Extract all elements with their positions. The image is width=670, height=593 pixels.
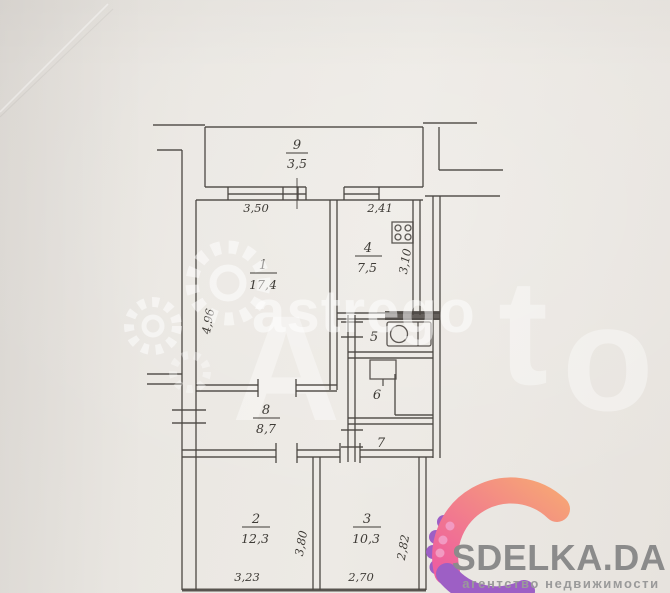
room-area: 10,3 <box>352 531 380 546</box>
watermark-letter-t: t <box>498 248 548 416</box>
room-number: 9 <box>293 138 301 153</box>
room-area: 3,5 <box>287 156 307 171</box>
room-number: 4 <box>363 241 372 256</box>
agency-logo: SDELKA.DA агентство недвижимости <box>426 490 666 593</box>
dim-room2-height: 3,80 <box>292 529 310 557</box>
room-2-label: 2 12,3 <box>241 512 270 546</box>
room-area: 12,3 <box>241 531 269 546</box>
dim-room3-height: 2,82 <box>394 533 412 562</box>
gear-icon <box>173 355 207 389</box>
logo-title: SDELKA.DA <box>452 537 667 578</box>
room-7-label: 7 <box>377 436 386 451</box>
gear-icon <box>129 302 177 350</box>
paper-crease <box>0 4 113 117</box>
dim-room3-width: 2,70 <box>347 570 374 584</box>
watermark-letter-o: o <box>562 274 654 442</box>
dim-kitchen-height: 3,10 <box>396 247 414 275</box>
dim-room2-width: 3,23 <box>234 570 260 584</box>
sink-icon <box>370 360 396 386</box>
floor-plan-photo: A t o <box>0 0 670 593</box>
room-3-label: 3 10,3 <box>352 512 381 546</box>
dim-room1-width: 3,50 <box>243 201 269 215</box>
dim-kitchen-width: 2,41 <box>366 201 393 215</box>
toilet-label: 6 <box>373 388 381 403</box>
floor-plan-drawing: A t o <box>0 0 670 593</box>
logo-tagline: агентство недвижимости <box>462 576 659 591</box>
room-number: 3 <box>363 512 371 527</box>
stove-icon <box>392 222 413 243</box>
room-number: 8 <box>262 403 270 418</box>
balcony-label: 9 3,5 <box>286 138 308 171</box>
kitchen-label: 4 7,5 <box>355 241 382 275</box>
room-area: 7,5 <box>357 260 377 275</box>
room-number: 2 <box>251 512 260 527</box>
room-area: 8,7 <box>256 421 276 436</box>
watermark-agency-text: astrego <box>252 278 476 345</box>
